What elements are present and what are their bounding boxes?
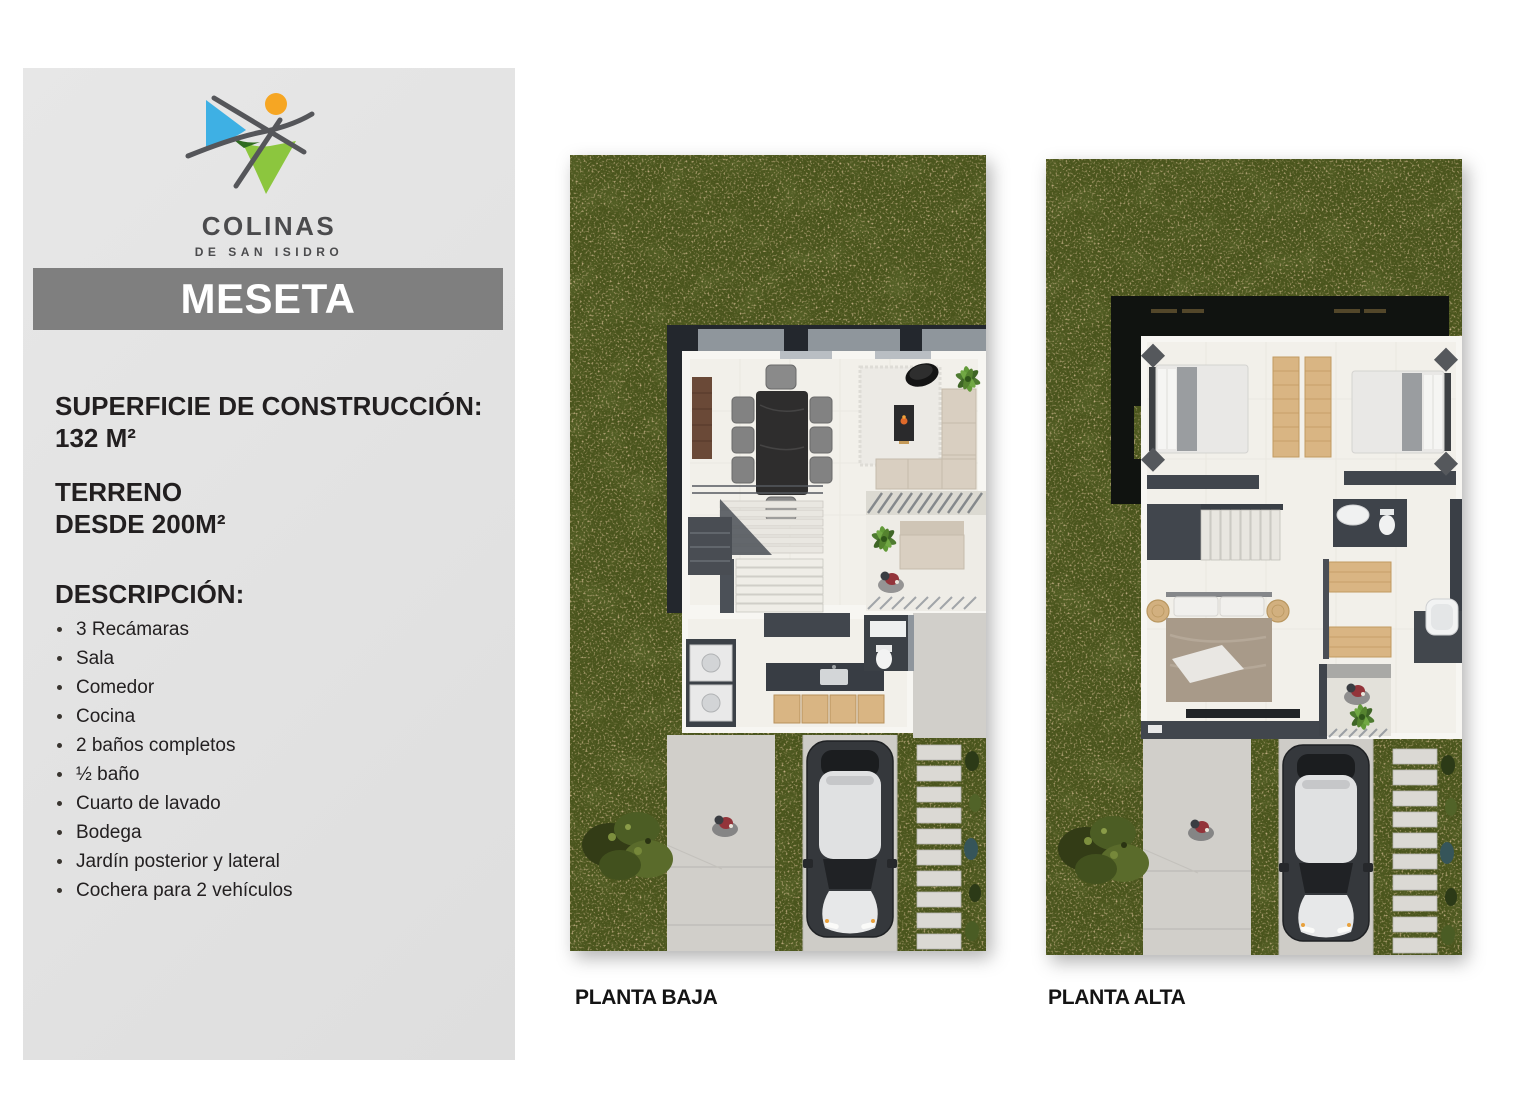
specs-block: SUPERFICIE DE CONSTRUCCIÓN: 132 M² TERRE… <box>55 390 489 610</box>
balcony <box>1319 664 1391 737</box>
plan-label-planta-baja: PLANTA BAJA <box>575 986 718 1010</box>
logo: COLINAS DE SAN ISIDRO <box>23 90 515 259</box>
list-item: Cochera para 2 vehículos <box>57 877 495 906</box>
list-item: Jardín posterior y lateral <box>57 848 495 877</box>
bullet-icon <box>57 888 62 893</box>
floor-plan-planta-baja <box>570 155 986 951</box>
list-item: ½ baño <box>57 761 495 790</box>
list-item: Cocina <box>57 703 495 732</box>
pantry-shelves <box>688 517 732 575</box>
floor-plan-planta-alta <box>1046 159 1462 955</box>
land-value: DESDE 200M² <box>55 508 489 540</box>
list-item-label: Cocina <box>76 703 135 730</box>
plan-label-planta-alta: PLANTA ALTA <box>1048 986 1185 1010</box>
model-title: MESETA <box>181 275 356 323</box>
description-heading: DESCRIPCIÓN: <box>55 578 489 610</box>
list-item: 3 Recámaras <box>57 616 495 645</box>
bullet-icon <box>57 801 62 806</box>
description-list: 3 RecámarasSalaComedorCocina2 baños comp… <box>57 616 495 906</box>
laundry <box>686 639 736 727</box>
info-panel: COLINAS DE SAN ISIDRO MESETA SUPERFICIE … <box>23 68 515 1060</box>
list-item: Comedor <box>57 674 495 703</box>
bullet-icon <box>57 772 62 777</box>
bullet-icon <box>57 656 62 661</box>
bullet-icon <box>57 627 62 632</box>
half-bath <box>864 615 914 671</box>
bathroom <box>1333 499 1407 547</box>
console-table <box>692 377 712 459</box>
list-item-label: Comedor <box>76 674 154 701</box>
construction-value: 132 M² <box>55 422 489 454</box>
list-item-label: Sala <box>76 645 114 672</box>
list-item-label: 2 baños completos <box>76 732 236 759</box>
bullet-icon <box>57 743 62 748</box>
list-item: 2 baños completos <box>57 732 495 761</box>
construction-label: SUPERFICIE DE CONSTRUCCIÓN: <box>55 390 489 422</box>
brand-name: COLINAS <box>23 211 515 242</box>
house-upper-floor <box>1111 296 1462 739</box>
stairs <box>1147 504 1283 560</box>
land-label: TERRENO <box>55 476 489 508</box>
list-item: Bodega <box>57 819 495 848</box>
bullet-icon <box>57 685 62 690</box>
bullet-icon <box>57 830 62 835</box>
list-item-label: Cochera para 2 vehículos <box>76 877 293 904</box>
bullet-icon <box>57 859 62 864</box>
list-item-label: Jardín posterior y lateral <box>76 848 280 875</box>
bullet-icon <box>57 714 62 719</box>
model-title-bar: MESETA <box>33 268 503 330</box>
list-item-label: Bodega <box>76 819 142 846</box>
list-item-label: 3 Recámaras <box>76 616 189 643</box>
colinas-logo-icon <box>184 90 354 202</box>
house-ground-floor <box>667 325 986 738</box>
list-item: Cuarto de lavado <box>57 790 495 819</box>
list-item: Sala <box>57 645 495 674</box>
list-item-label: ½ baño <box>76 761 139 788</box>
list-item-label: Cuarto de lavado <box>76 790 221 817</box>
terrace <box>866 491 986 619</box>
brand-subname: DE SAN ISIDRO <box>23 245 515 259</box>
